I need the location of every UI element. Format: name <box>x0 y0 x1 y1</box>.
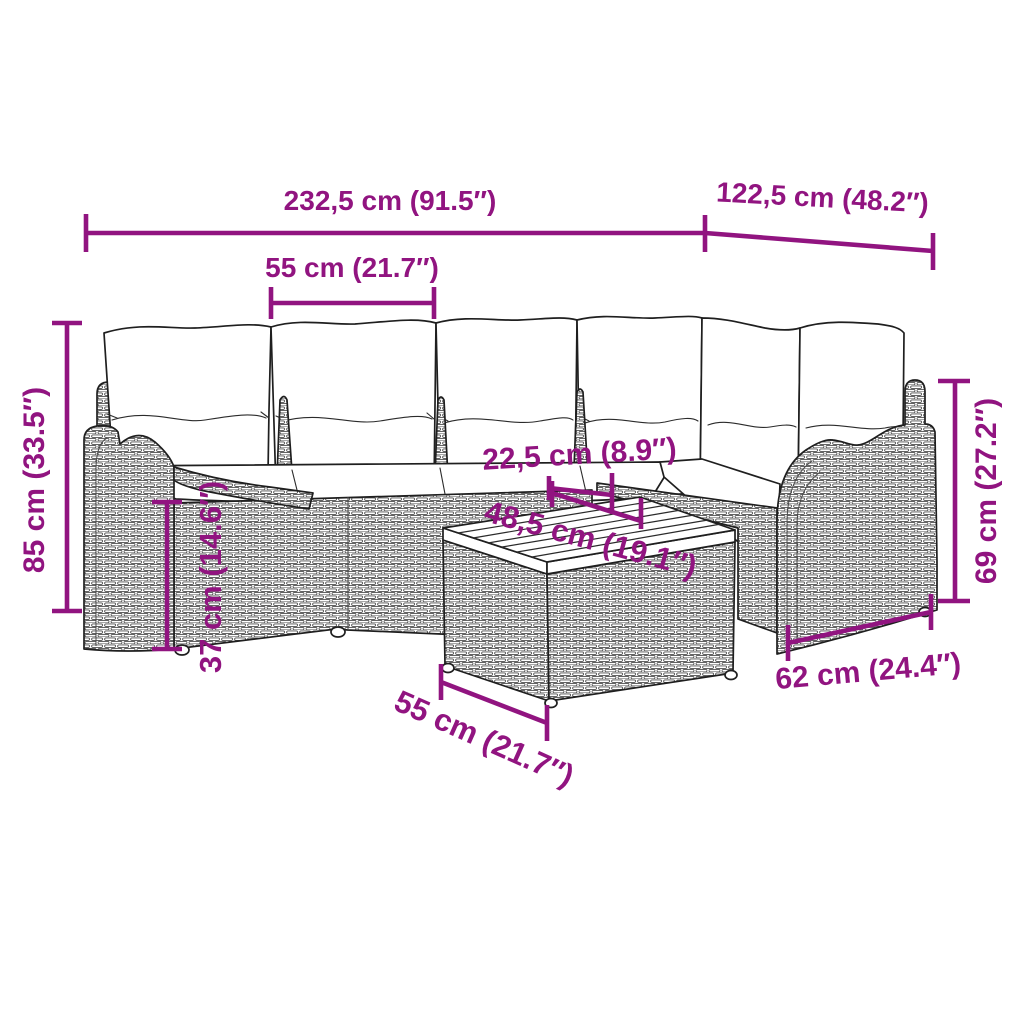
dimension-line <box>86 214 705 252</box>
dimension-label: 62 cm (24.4″) <box>774 647 962 696</box>
dimension-line <box>52 323 82 611</box>
dimension-label: 55 cm (21.7″) <box>265 252 439 283</box>
dimension-right-section-depth: 122,5 cm (48.2″) <box>705 176 933 270</box>
dimension-diagram-canvas: 232,5 cm (91.5″) 122,5 cm (48.2″) 55 cm … <box>0 0 1024 1024</box>
dimension-armrest-height: 69 cm (27.2″) <box>938 381 1003 601</box>
dimension-overall-width: 232,5 cm (91.5″) <box>86 185 705 252</box>
dimension-line <box>271 287 434 319</box>
left-armrest-panel <box>84 426 174 651</box>
dimension-label: 122,5 cm (48.2″) <box>716 176 930 218</box>
table-foot <box>442 664 454 673</box>
dimension-seat-width: 55 cm (21.7″) <box>265 252 439 319</box>
sofa-foot <box>331 627 345 637</box>
dimension-back-height: 85 cm (33.5″) <box>18 323 82 611</box>
dimension-line <box>705 233 933 270</box>
table-foot <box>725 671 737 680</box>
dimension-label: 85 cm (33.5″) <box>18 387 51 573</box>
dimension-line <box>938 381 970 601</box>
product-dimension-diagram: 232,5 cm (91.5″) 122,5 cm (48.2″) 55 cm … <box>0 0 1024 1024</box>
dimension-label: 232,5 cm (91.5″) <box>284 185 497 216</box>
dimension-label: 37 cm (14.6″) <box>193 481 228 673</box>
dimension-label: 69 cm (27.2″) <box>970 398 1003 584</box>
